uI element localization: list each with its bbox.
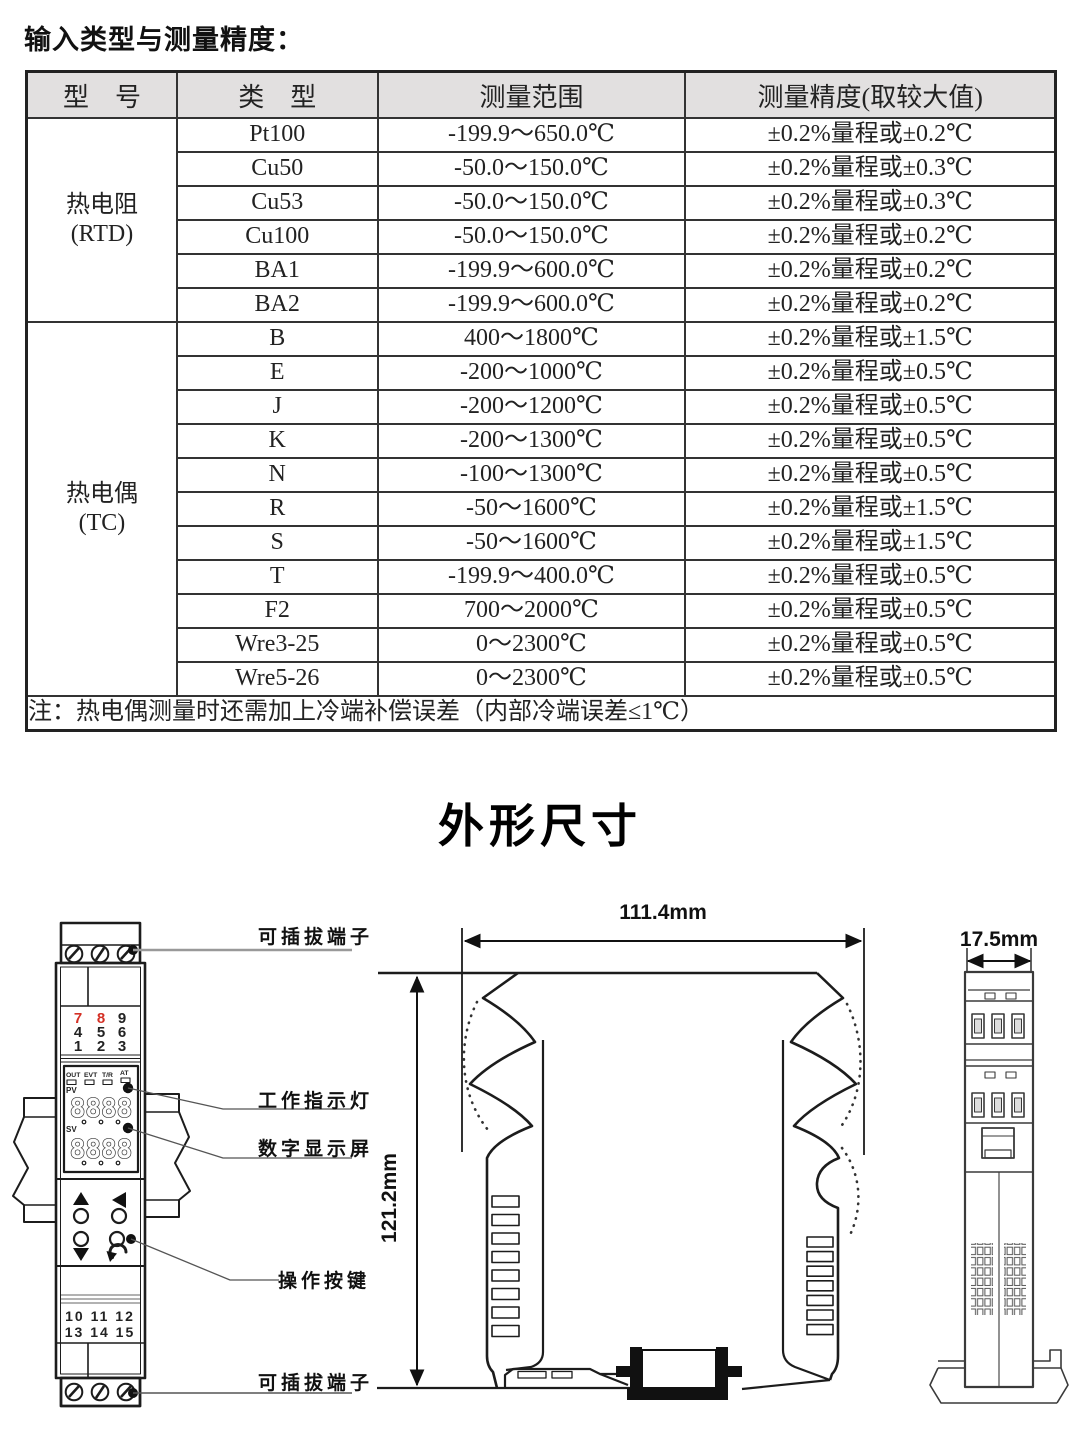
sv-label: SV xyxy=(66,1125,77,1134)
table-row: Wre5-260～2300℃±0.2%量程或±0.5℃ xyxy=(27,662,1056,696)
table-row: 热电偶 (TC) B 400～1800℃ ±0.2%量程或±1.5℃ xyxy=(27,322,1056,356)
dimension-height-label: 121.2mm xyxy=(378,1138,402,1258)
cell-range: -199.9～650.0℃ xyxy=(378,118,686,152)
table-row: 热电阻 (RTD) Pt100 -199.9～650.0℃ ±0.2%量程或±0… xyxy=(27,118,1056,152)
model-name: 热电阻 xyxy=(28,193,176,218)
model-name: 热电偶 xyxy=(28,482,176,507)
cell-type: F2 xyxy=(177,594,378,628)
left-button-icon xyxy=(112,1192,126,1208)
table-header-row: 型 号 类 型 测量范围 测量精度(取较大值) xyxy=(27,72,1056,119)
cell-accuracy: ±0.2%量程或±0.2℃ xyxy=(685,254,1055,288)
dimension-width-label: 111.4mm xyxy=(600,901,726,925)
cell-type: R xyxy=(177,492,378,526)
table-row: Wre3-250～2300℃±0.2%量程或±0.5℃ xyxy=(27,628,1056,662)
cell-accuracy: ±0.2%量程或±0.5℃ xyxy=(685,390,1055,424)
cell-accuracy: ±0.2%量程或±0.5℃ xyxy=(685,424,1055,458)
label-display: 数字显示屏 xyxy=(258,1134,373,1161)
dimension-end-width-label: 17.5mm xyxy=(954,928,1044,952)
table-row: N-100～1300℃±0.2%量程或±0.5℃ xyxy=(27,458,1056,492)
table-row: Cu50-50.0～150.0℃±0.2%量程或±0.3℃ xyxy=(27,152,1056,186)
cell-range: -50～1600℃ xyxy=(378,526,686,560)
end-view-drawing xyxy=(930,948,1068,1403)
cell-type: N xyxy=(177,458,378,492)
indicator-label-tr: T/R xyxy=(102,1072,113,1079)
cell-accuracy: ±0.2%量程或±0.5℃ xyxy=(685,628,1055,662)
end-terminals-bottom xyxy=(972,1093,1024,1117)
datasheet-page: 输入类型与测量精度： 型 号 类 型 测量范围 测量精度(取较大值) 热电阻 (… xyxy=(0,0,1080,1453)
header-accuracy: 测量精度(取较大值) xyxy=(685,72,1055,119)
label-bottom-terminal: 可插拔端子 xyxy=(258,1368,373,1395)
cell-type: S xyxy=(177,526,378,560)
width-dimension xyxy=(462,928,864,1155)
svg-text:2: 2 xyxy=(97,1038,105,1055)
table-row: BA1-199.9～600.0℃±0.2%量程或±0.2℃ xyxy=(27,254,1056,288)
cell-range: -199.9～400.0℃ xyxy=(378,560,686,594)
cell-accuracy: ±0.2%量程或±0.5℃ xyxy=(685,458,1055,492)
module-profile xyxy=(378,973,856,1388)
terminal-numbers-top: 10 11 12 xyxy=(65,1308,135,1324)
cell-range: -199.9～600.0℃ xyxy=(378,288,686,322)
cell-range: -200～1000℃ xyxy=(378,356,686,390)
indicator-dot xyxy=(123,1083,133,1093)
cell-range: 0～2300℃ xyxy=(378,662,686,696)
indicator-label-at: AT xyxy=(120,1070,129,1077)
table-note-row: 注：热电偶测量时还需加上冷端补偿误差（内部冷端误差≤1℃） xyxy=(27,696,1056,731)
rail-foot xyxy=(377,1369,830,1389)
din-rail-right xyxy=(145,1094,190,1217)
top-terminal-block xyxy=(61,923,140,963)
cell-accuracy: ±0.2%量程或±0.2℃ xyxy=(685,288,1055,322)
cell-accuracy: ±0.2%量程或±0.5℃ xyxy=(685,356,1055,390)
table-row: Cu100-50.0～150.0℃±0.2%量程或±0.2℃ xyxy=(27,220,1056,254)
cell-accuracy: ±0.2%量程或±1.5℃ xyxy=(685,526,1055,560)
cell-accuracy: ±0.2%量程或±1.5℃ xyxy=(685,322,1055,356)
pv-display: 8888 xyxy=(70,1094,133,1124)
table-row: E-200～1000℃±0.2%量程或±0.5℃ xyxy=(27,356,1056,390)
rail-clamp xyxy=(616,1347,742,1400)
cell-type: J xyxy=(177,390,378,424)
cell-accuracy: ±0.2%量程或±0.3℃ xyxy=(685,186,1055,220)
model-sub: (RTD) xyxy=(28,222,176,247)
cell-range: -50.0～150.0℃ xyxy=(378,186,686,220)
table-row: S-50～1600℃±0.2%量程或±1.5℃ xyxy=(27,526,1056,560)
down-button-icon xyxy=(73,1248,89,1261)
table-row: T-199.9～400.0℃±0.2%量程或±0.5℃ xyxy=(27,560,1056,594)
leader-lines xyxy=(128,950,352,1393)
svg-text:1: 1 xyxy=(74,1038,82,1055)
up-button-icon xyxy=(73,1192,89,1205)
cell-type: BA1 xyxy=(177,254,378,288)
end-clip xyxy=(982,1128,1014,1158)
table-row: BA2-199.9～600.0℃±0.2%量程或±0.2℃ xyxy=(27,288,1056,322)
cell-range: -200～1300℃ xyxy=(378,424,686,458)
cell-type: Wre3-25 xyxy=(177,628,378,662)
button-panel xyxy=(56,1179,145,1266)
cell-accuracy: ±0.2%量程或±1.5℃ xyxy=(685,492,1055,526)
vent-grid xyxy=(971,1243,993,1315)
dimension-drawings: 7 8 9 4 5 6 1 2 3 OUT EVT T/R AT PV xyxy=(0,870,1080,1453)
cell-accuracy: ±0.2%量程或±0.5℃ xyxy=(685,560,1055,594)
label-indicator: 工作指示灯 xyxy=(258,1086,373,1113)
table-row: R-50～1600℃±0.2%量程或±1.5℃ xyxy=(27,492,1056,526)
cell-accuracy: ±0.2%量程或±0.5℃ xyxy=(685,662,1055,696)
header-type: 类 型 xyxy=(177,72,378,119)
cell-model-rtd: 热电阻 (RTD) xyxy=(27,118,177,322)
bottom-terminal-block xyxy=(61,1378,140,1406)
cell-range: -50.0～150.0℃ xyxy=(378,152,686,186)
cell-type: B xyxy=(177,322,378,356)
cell-accuracy: ±0.2%量程或±0.5℃ xyxy=(685,594,1055,628)
section-title: 外形尺寸 xyxy=(0,790,1080,856)
cell-accuracy: ±0.2%量程或±0.2℃ xyxy=(685,220,1055,254)
indicator-label-evt: EVT xyxy=(84,1072,98,1079)
display-panel: OUT EVT T/R AT PV SV 8888 8888 xyxy=(64,1066,138,1172)
cell-range: -50～1600℃ xyxy=(378,492,686,526)
page-title: 输入类型与测量精度： xyxy=(24,18,304,57)
svg-text:3: 3 xyxy=(118,1038,126,1055)
table-row: F2700～2000℃±0.2%量程或±0.5℃ xyxy=(27,594,1056,628)
display-dot xyxy=(123,1123,133,1133)
cell-type: Cu53 xyxy=(177,186,378,220)
cell-type: T xyxy=(177,560,378,594)
label-buttons: 操作按键 xyxy=(278,1266,370,1293)
cell-range: -199.9～600.0℃ xyxy=(378,254,686,288)
front-view-drawing: 7 8 9 4 5 6 1 2 3 OUT EVT T/R AT PV xyxy=(13,923,352,1406)
cell-model-tc: 热电偶 (TC) xyxy=(27,322,177,696)
table-row: K-200～1300℃±0.2%量程或±0.5℃ xyxy=(27,424,1056,458)
din-rail-left xyxy=(13,1098,56,1222)
cell-type: Wre5-26 xyxy=(177,662,378,696)
cell-accuracy: ±0.2%量程或±0.2℃ xyxy=(685,118,1055,152)
table-note: 注：热电偶测量时还需加上冷端补偿误差（内部冷端误差≤1℃） xyxy=(27,696,1056,731)
cell-range: -200～1200℃ xyxy=(378,390,686,424)
cell-type: Cu100 xyxy=(177,220,378,254)
cell-range: 400～1800℃ xyxy=(378,322,686,356)
side-view-drawing xyxy=(377,928,864,1400)
model-sub: (TC) xyxy=(28,511,176,536)
table-row: Cu53-50.0～150.0℃±0.2%量程或±0.3℃ xyxy=(27,186,1056,220)
terminal-keypad: 7 8 9 4 5 6 1 2 3 xyxy=(74,1010,126,1055)
cell-accuracy: ±0.2%量程或±0.3℃ xyxy=(685,152,1055,186)
vent-grid xyxy=(1004,1243,1026,1315)
cell-range: -100～1300℃ xyxy=(378,458,686,492)
cell-type: E xyxy=(177,356,378,390)
label-top-terminal: 可插拔端子 xyxy=(258,922,373,949)
cell-type: K xyxy=(177,424,378,458)
cell-range: -50.0～150.0℃ xyxy=(378,220,686,254)
cell-type: Cu50 xyxy=(177,152,378,186)
end-terminals-top xyxy=(972,1014,1024,1038)
cell-range: 700～2000℃ xyxy=(378,594,686,628)
terminal-numbers-bottom: 13 14 15 xyxy=(65,1324,136,1340)
cell-range: 0～2300℃ xyxy=(378,628,686,662)
table-row: J-200～1200℃±0.2%量程或±0.5℃ xyxy=(27,390,1056,424)
return-button-icon xyxy=(107,1245,127,1262)
accuracy-table: 型 号 类 型 测量范围 测量精度(取较大值) 热电阻 (RTD) Pt100 … xyxy=(25,70,1057,732)
indicator-label-out: OUT xyxy=(66,1072,81,1079)
header-model: 型 号 xyxy=(27,72,177,119)
sv-display: 8888 xyxy=(70,1135,133,1165)
cell-type: BA2 xyxy=(177,288,378,322)
header-range: 测量范围 xyxy=(378,72,686,119)
cell-type: Pt100 xyxy=(177,118,378,152)
